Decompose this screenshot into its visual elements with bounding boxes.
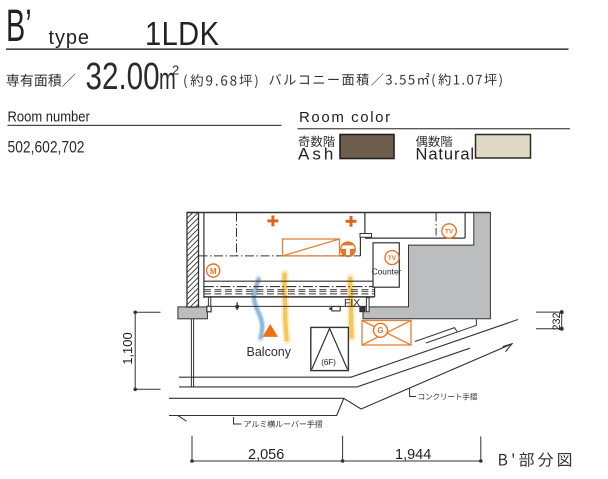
svg-text:B’: B’ (6, 2, 32, 52)
svg-text:Room number: Room number (8, 108, 91, 125)
svg-text:TV: TV (388, 255, 397, 262)
svg-text:1,944: 1,944 (395, 447, 431, 463)
svg-text:2,056: 2,056 (248, 447, 284, 463)
svg-text:TV: TV (445, 229, 454, 236)
svg-text:Balcony: Balcony (247, 345, 292, 359)
svg-text:Room color: Room color (299, 109, 392, 126)
svg-text:(6F): (6F) (321, 358, 336, 367)
svg-text:type: type (49, 27, 90, 49)
svg-text:232: 232 (551, 312, 563, 330)
svg-text:M: M (210, 267, 217, 276)
svg-text:Counter: Counter (372, 267, 402, 277)
svg-text:2: 2 (172, 63, 179, 78)
svg-text:1LDK: 1LDK (145, 15, 219, 52)
svg-text:G: G (377, 326, 383, 335)
svg-text:Ash: Ash (298, 145, 336, 164)
svg-text:FIX: FIX (344, 298, 360, 309)
svg-text:32.00: 32.00 (86, 56, 160, 98)
svg-text:502,602,702: 502,602,702 (8, 139, 85, 157)
svg-text:1,100: 1,100 (120, 332, 135, 365)
svg-text:Natural: Natural (416, 146, 476, 164)
